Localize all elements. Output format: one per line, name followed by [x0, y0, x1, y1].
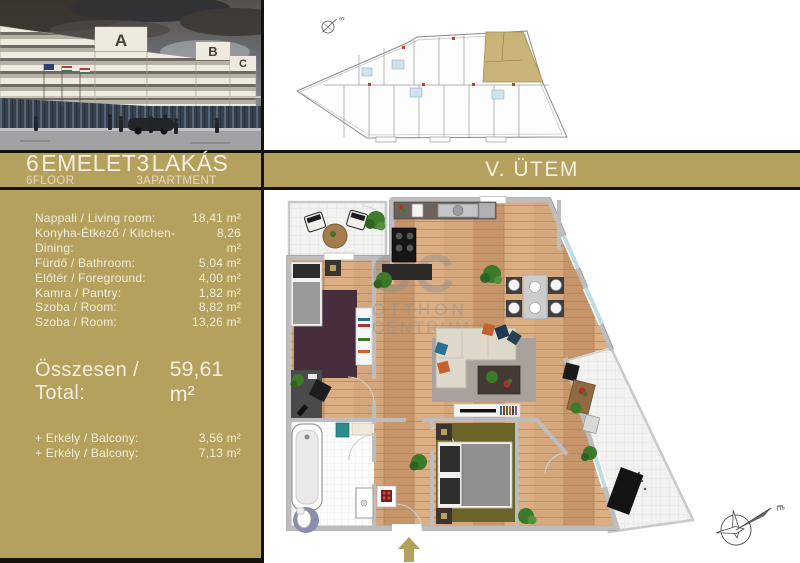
total-label: Összesen / Total: — [35, 359, 170, 405]
street — [0, 128, 261, 150]
room-area: 18,41 m² — [192, 211, 241, 226]
floor-label: EMELET — [41, 150, 136, 176]
room-area: 8,26 m² — [202, 226, 241, 256]
room-area: 1,82 m² — [199, 286, 241, 301]
room-label: Konyha-Étkező / Kitchen-Dining: — [35, 226, 202, 256]
apartment-sublabel: 3APARTMENT — [136, 175, 228, 187]
balcony-area: 7,13 m² — [199, 446, 241, 461]
compass-icon: É — [713, 503, 789, 548]
room-row: Konyha-Étkező / Kitchen-Dining:8,26 m² — [35, 226, 241, 256]
building-letter-b: B — [208, 44, 217, 59]
site-plan-compass-icon: É — [320, 16, 347, 34]
room-row: Fürdő / Bathroom:5,04 m² — [35, 256, 241, 271]
room-row: Előtér / Foreground:4,00 m² — [35, 271, 241, 286]
room-label: Nappali / Living room: — [35, 211, 155, 226]
total-area: 59,61 m² — [170, 357, 241, 407]
building-photo: A B C — [0, 0, 261, 150]
phase-label: V. ÜTEM — [485, 158, 579, 182]
total-row: Összesen / Total: 59,61 m² — [35, 357, 241, 407]
room-label: Szoba / Room: — [35, 300, 117, 315]
balcony-area: 3,56 m² — [199, 431, 241, 446]
room-row: Szoba / Room:13,26 m² — [35, 315, 241, 330]
room-area: 4,00 m² — [199, 271, 241, 286]
apartment-count: 3LAKÁS 3APARTMENT — [136, 153, 228, 187]
balcony-label: + Erkély / Balcony: — [35, 446, 139, 461]
floor-plan: OC OTTHON CENTRUM — [264, 190, 800, 563]
compass-north-label: É — [775, 505, 785, 512]
apartment-number: 3 — [136, 150, 149, 176]
site-plan: É — [264, 0, 800, 150]
apartment-label: LAKÁS — [152, 150, 229, 176]
floor-number: 6 — [26, 150, 39, 176]
watermark-line1: OTTHON — [372, 300, 468, 319]
room-row: Kamra / Pantry:1,82 m² — [35, 286, 241, 301]
room-label: Kamra / Pantry: — [35, 286, 121, 301]
entrance-arrow-icon — [398, 537, 420, 562]
room-row: Szoba / Room:8,82 m² — [35, 300, 241, 315]
phase-band: V. ÜTEM — [264, 153, 800, 187]
area-table: Nappali / Living room:18,41 m² Konyha-Ét… — [0, 190, 261, 558]
balcony-row: + Erkély / Balcony:7,13 m² — [35, 446, 241, 461]
room-area: 8,82 m² — [199, 300, 241, 315]
balcony-row: + Erkély / Balcony:3,56 m² — [35, 431, 241, 446]
room-area: 13,26 m² — [192, 315, 241, 330]
balcony-label: + Erkély / Balcony: — [35, 431, 139, 446]
entry-door-gap — [392, 524, 422, 532]
room-label: Szoba / Room: — [35, 315, 117, 330]
room-rows: Nappali / Living room:18,41 m² Konyha-Ét… — [35, 211, 241, 330]
building-letter-c: C — [239, 58, 247, 70]
floor-sublabel: 6FLOOR — [26, 175, 136, 187]
floor-count: 6EMELET 6FLOOR — [26, 153, 136, 187]
room-label: Fürdő / Bathroom: — [35, 256, 135, 271]
building-letter-a: A — [115, 31, 127, 50]
floor-apartment-band: 6EMELET 6FLOOR 3LAKÁS 3APARTMENT — [0, 153, 261, 187]
room-row: Nappali / Living room:18,41 m² — [35, 211, 241, 226]
room-label: Előtér / Foreground: — [35, 271, 146, 286]
building-photo-art: A B C — [0, 0, 261, 150]
balcony-rows: + Erkély / Balcony:3,56 m² + Erkély / Ba… — [35, 431, 241, 461]
site-plan-balcony-stubs — [376, 137, 506, 142]
site-compass-north-label: É — [337, 16, 345, 21]
room-area: 5,04 m² — [199, 256, 241, 271]
brochure-page: A B C — [0, 0, 800, 563]
